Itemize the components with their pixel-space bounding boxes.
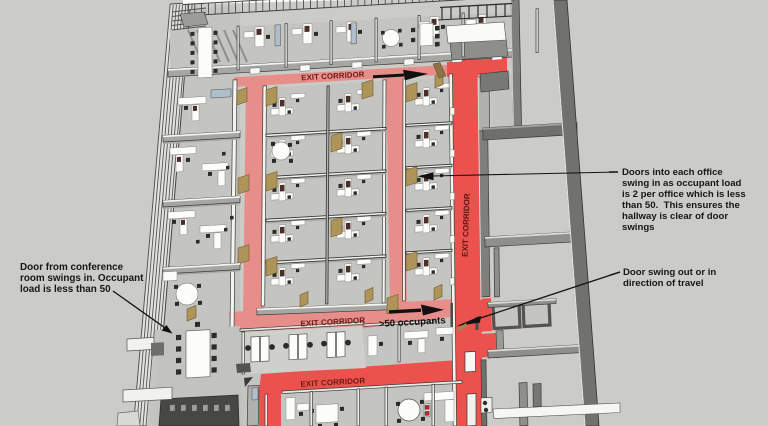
- svg-text:room swings in. Occupant: room swings in. Occupant: [20, 273, 144, 284]
- svg-text:load is less than 50: load is less than 50: [20, 284, 111, 295]
- svg-text:Door swing out or in: Door swing out or in: [623, 267, 716, 278]
- svg-text:Door from conference: Door from conference: [20, 262, 124, 273]
- svg-text:is 2 per office which is less: is 2 per office which is less: [622, 189, 746, 200]
- svg-text:Doors into each office: Doors into each office: [622, 167, 723, 178]
- svg-text:hallway is clear of door: hallway is clear of door: [622, 211, 728, 222]
- svg-text:direction of travel: direction of travel: [623, 278, 704, 289]
- svg-text:than 50. This ensures the: than 50. This ensures the: [622, 200, 740, 211]
- svg-text:swing in as occupant load: swing in as occupant load: [622, 178, 742, 189]
- svg-text:swings: swings: [622, 222, 655, 233]
